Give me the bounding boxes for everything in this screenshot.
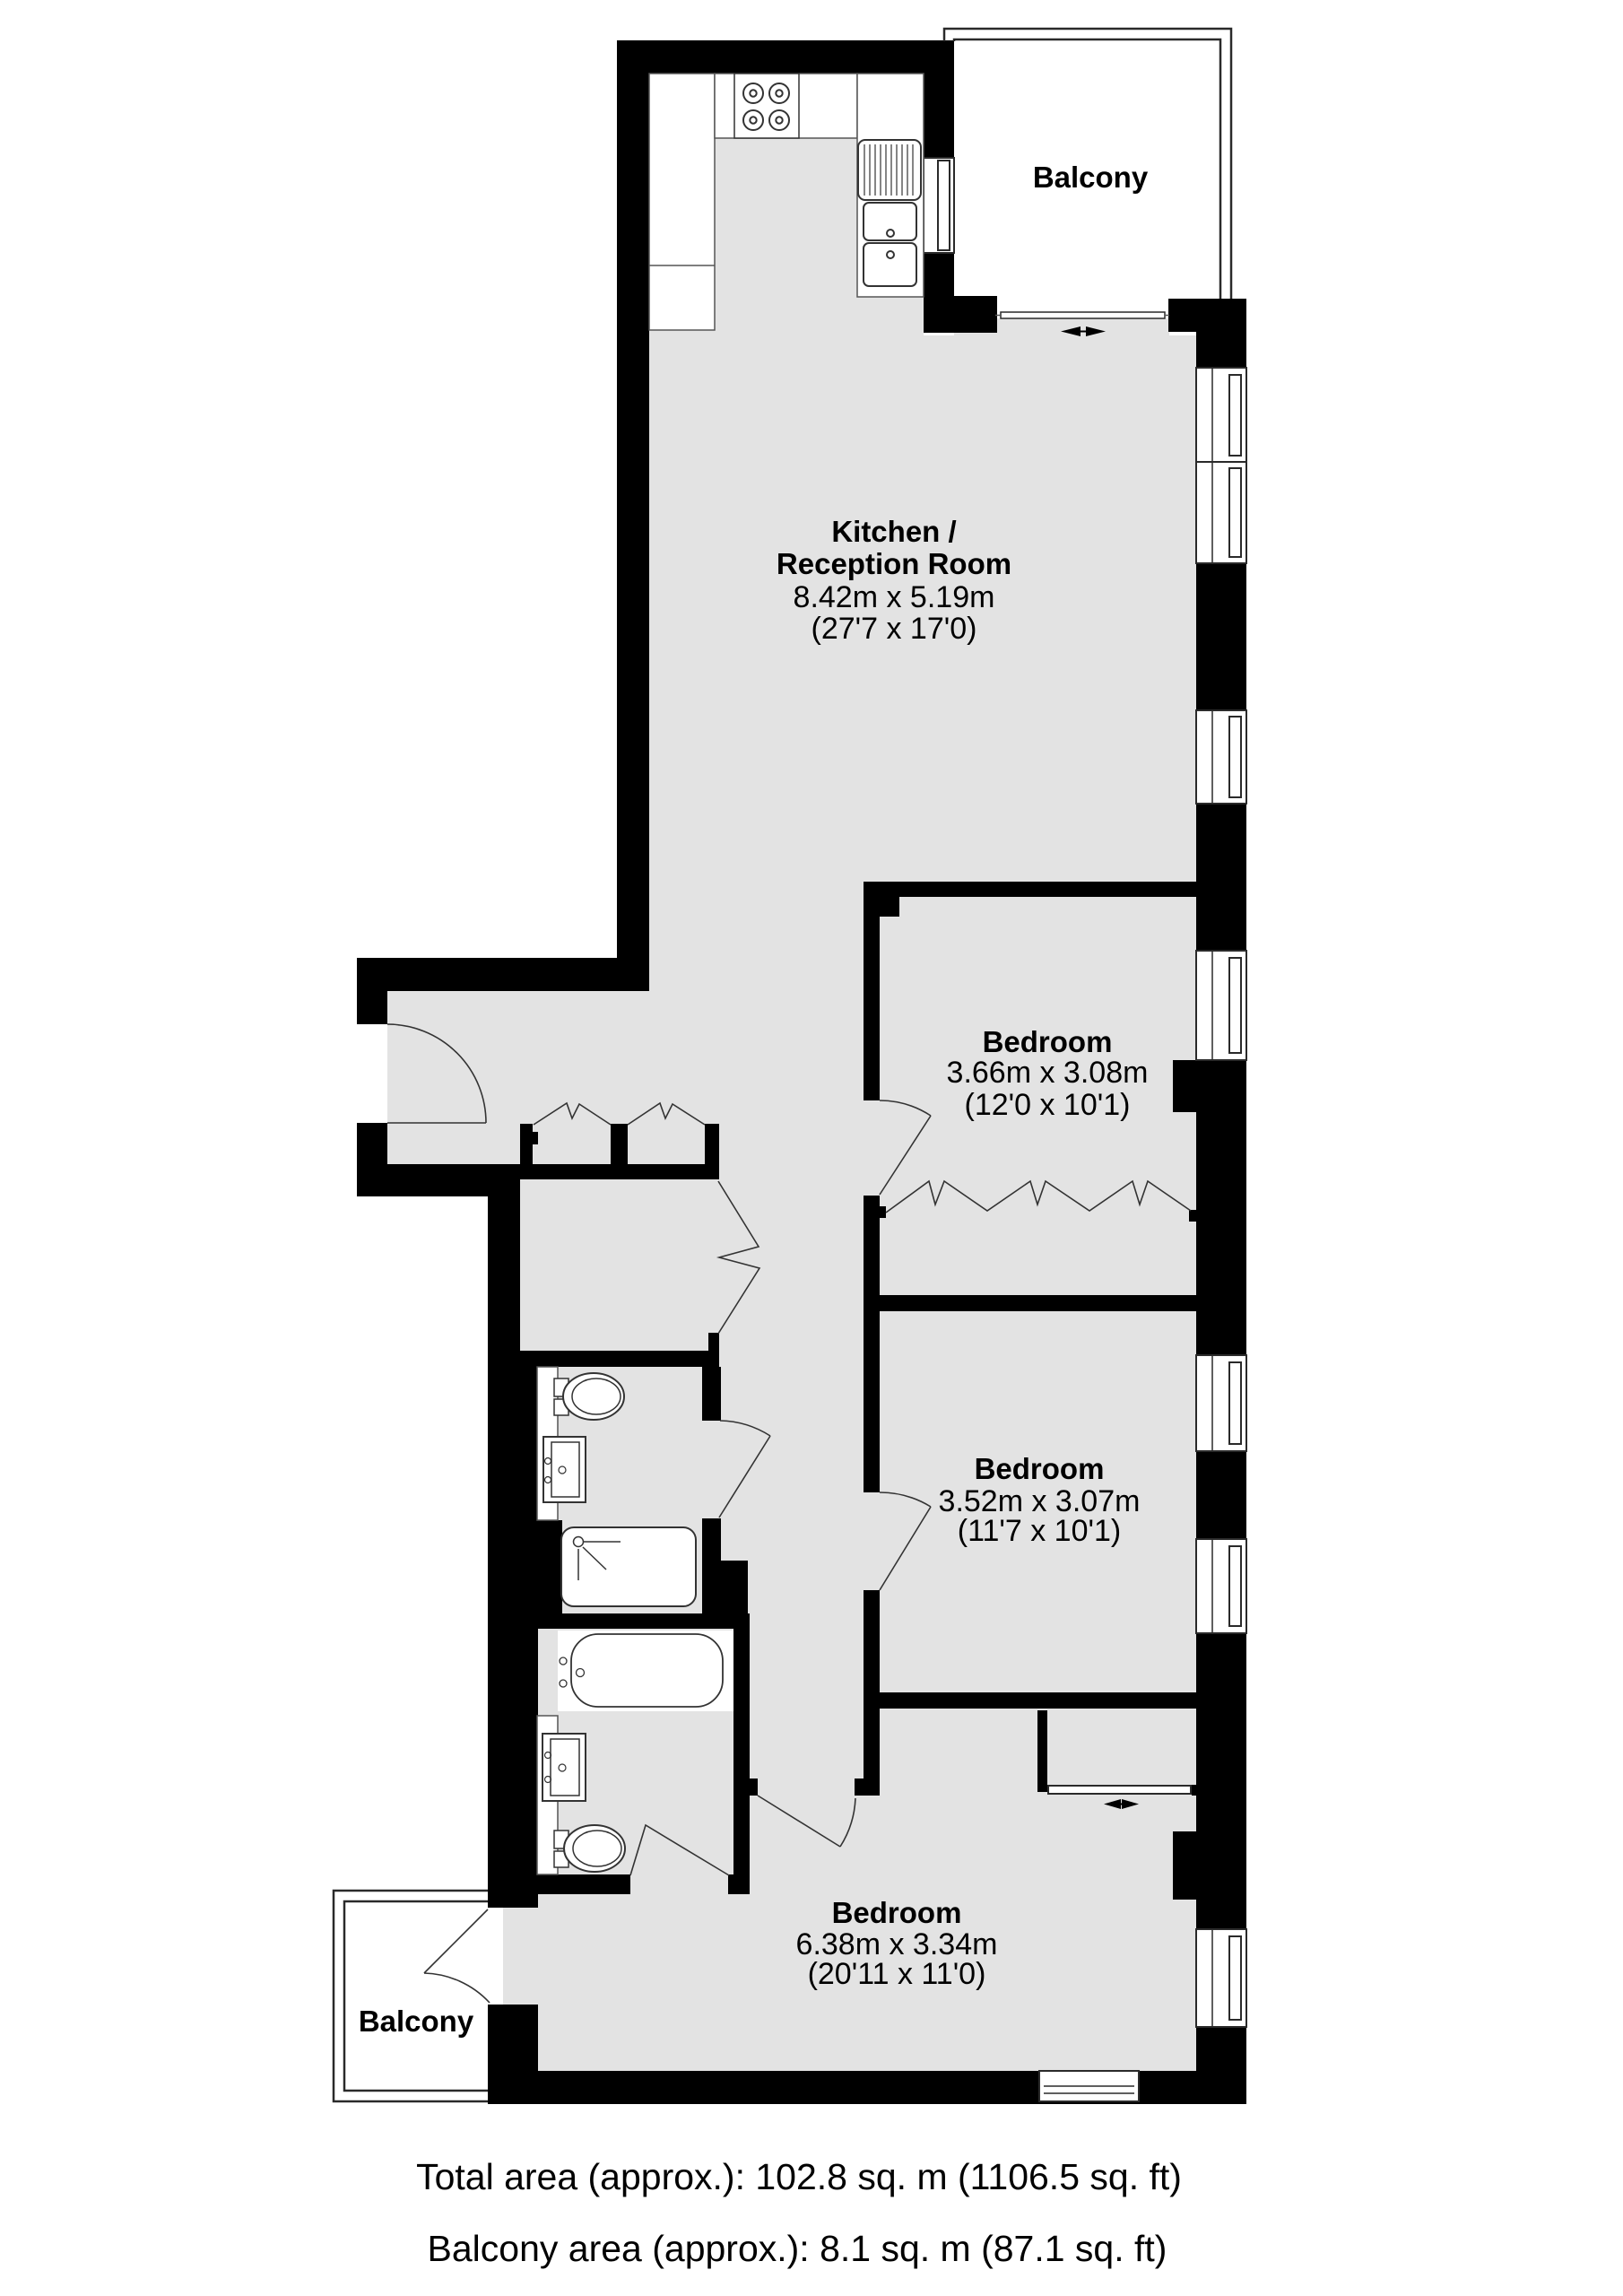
svg-text:Reception Room: Reception Room (777, 547, 1011, 580)
svg-text:8.42m x 5.19m: 8.42m x 5.19m (794, 580, 995, 614)
svg-text:Bedroom: Bedroom (983, 1025, 1113, 1058)
svg-text:Bedroom: Bedroom (975, 1452, 1105, 1485)
svg-text:(11'7 x 10'1): (11'7 x 10'1) (958, 1514, 1121, 1548)
svg-text:Bedroom: Bedroom (832, 1896, 962, 1929)
svg-text:3.66m x 3.08m: 3.66m x 3.08m (947, 1056, 1149, 1090)
svg-text:Balcony: Balcony (359, 2005, 474, 2038)
svg-text:Kitchen /: Kitchen / (831, 515, 956, 548)
svg-text:(27'7 x 17'0): (27'7 x 17'0) (811, 612, 977, 646)
svg-text:Balcony area (approx.): 8.1 sq: Balcony area (approx.): 8.1 sq. m (87.1 … (428, 2228, 1167, 2269)
svg-text:(12'0 x 10'1): (12'0 x 10'1) (965, 1088, 1131, 1122)
svg-text:Balcony: Balcony (1033, 161, 1149, 194)
svg-text:(20'11 x 11'0): (20'11 x 11'0) (808, 1957, 986, 1991)
svg-text:Total area (approx.): 102.8 sq: Total area (approx.): 102.8 sq. m (1106.… (416, 2156, 1182, 2197)
